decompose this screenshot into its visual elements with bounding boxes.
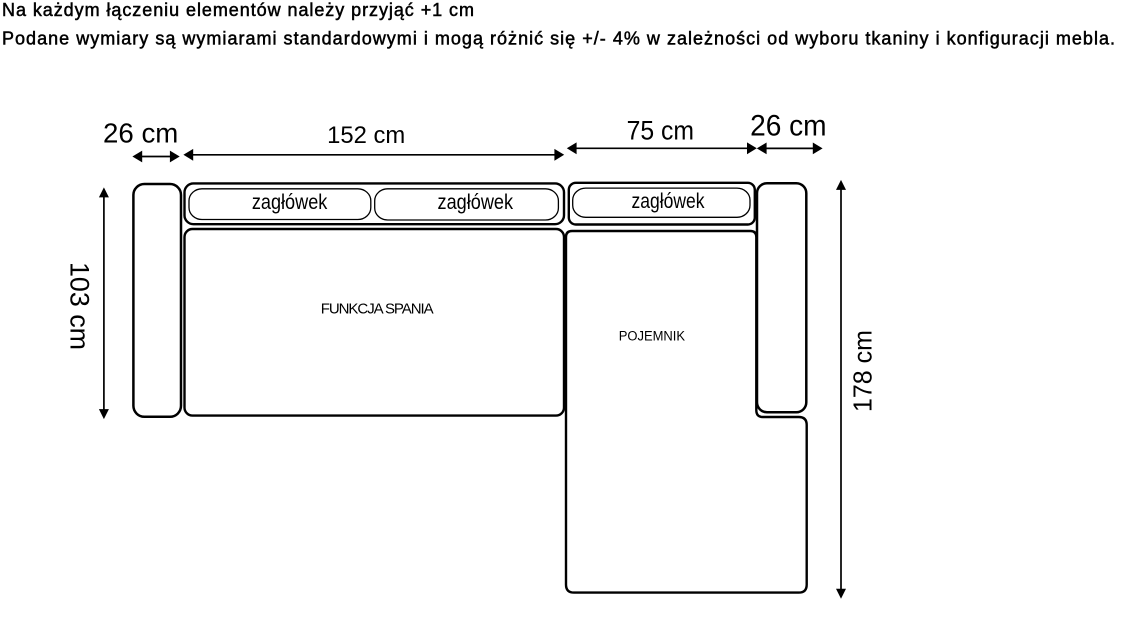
svg-text:26 cm: 26 cm xyxy=(103,118,178,149)
svg-text:178 cm: 178 cm xyxy=(848,330,878,412)
svg-text:zagłówek: zagłówek xyxy=(632,190,705,213)
svg-text:26 cm: 26 cm xyxy=(750,109,827,142)
svg-text:POJEMNIK: POJEMNIK xyxy=(619,329,686,345)
svg-text:75 cm: 75 cm xyxy=(627,116,694,146)
svg-text:103 cm: 103 cm xyxy=(65,262,95,350)
svg-text:zagłówek: zagłówek xyxy=(252,191,328,214)
svg-text:Na każdym łączeniu elementów n: Na każdym łączeniu elementów należy przy… xyxy=(2,0,474,20)
svg-text:FUNKCJA SPANIA: FUNKCJA SPANIA xyxy=(321,300,434,317)
svg-text:Podane wymiary są wymiarami st: Podane wymiary są wymiarami standardowym… xyxy=(2,28,1115,48)
svg-text:152 cm: 152 cm xyxy=(327,122,405,149)
svg-text:zagłówek: zagłówek xyxy=(438,191,514,214)
